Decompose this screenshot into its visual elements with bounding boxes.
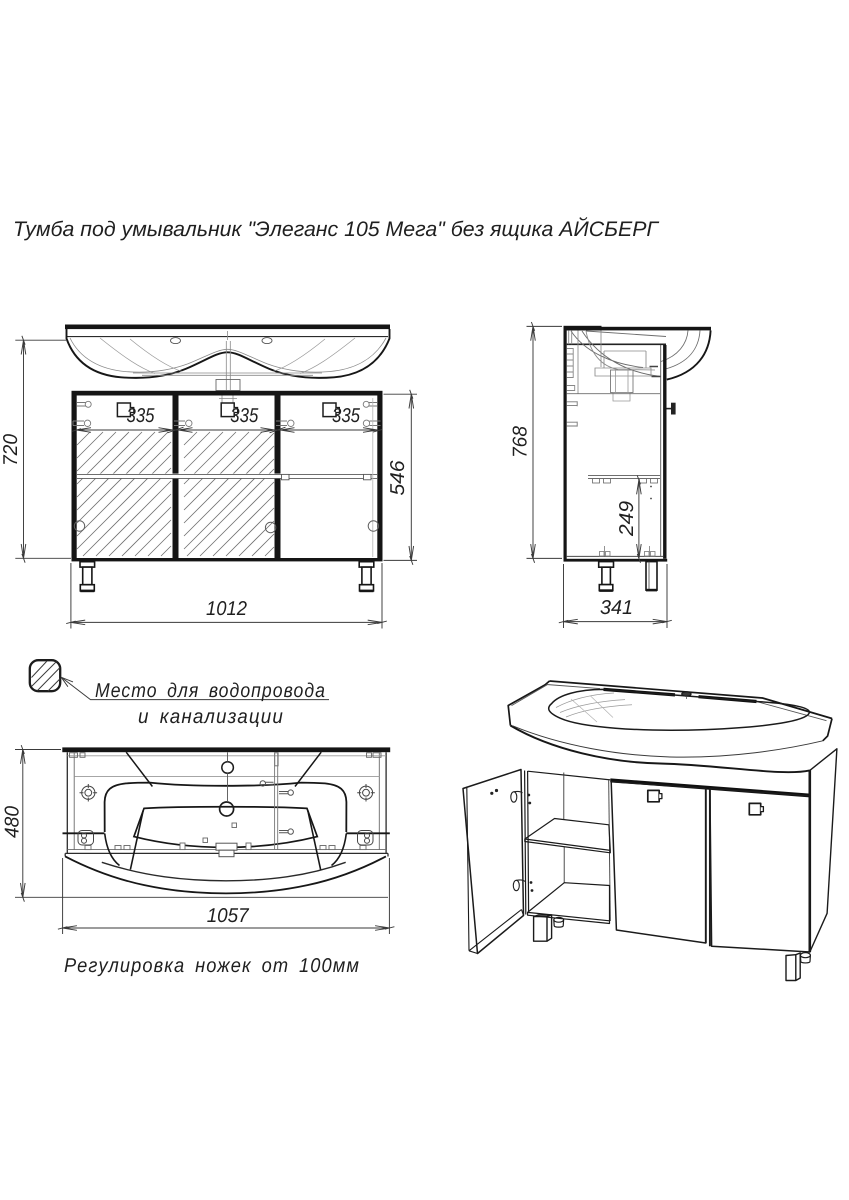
svg-text:480: 480 xyxy=(2,806,24,838)
svg-text:335: 335 xyxy=(127,405,156,427)
svg-text:и канализации: и канализации xyxy=(138,706,284,728)
svg-text:341: 341 xyxy=(600,597,633,619)
svg-text:Регулировка ножек от 100мм: Регулировка ножек от 100мм xyxy=(64,955,360,977)
svg-text:1012: 1012 xyxy=(206,598,247,620)
svg-text:720: 720 xyxy=(0,434,22,466)
svg-text:546: 546 xyxy=(387,460,409,496)
svg-text:335: 335 xyxy=(332,405,361,427)
svg-text:335: 335 xyxy=(230,405,259,427)
svg-text:Тумба под умывальник "Элеганс: Тумба под умывальник "Элеганс 105 Мега" … xyxy=(13,217,660,241)
svg-text:249: 249 xyxy=(616,501,638,537)
svg-text:Место для водопровода: Место для водопровода xyxy=(95,680,326,702)
svg-text:1057: 1057 xyxy=(207,905,250,927)
svg-text:768: 768 xyxy=(510,426,532,458)
